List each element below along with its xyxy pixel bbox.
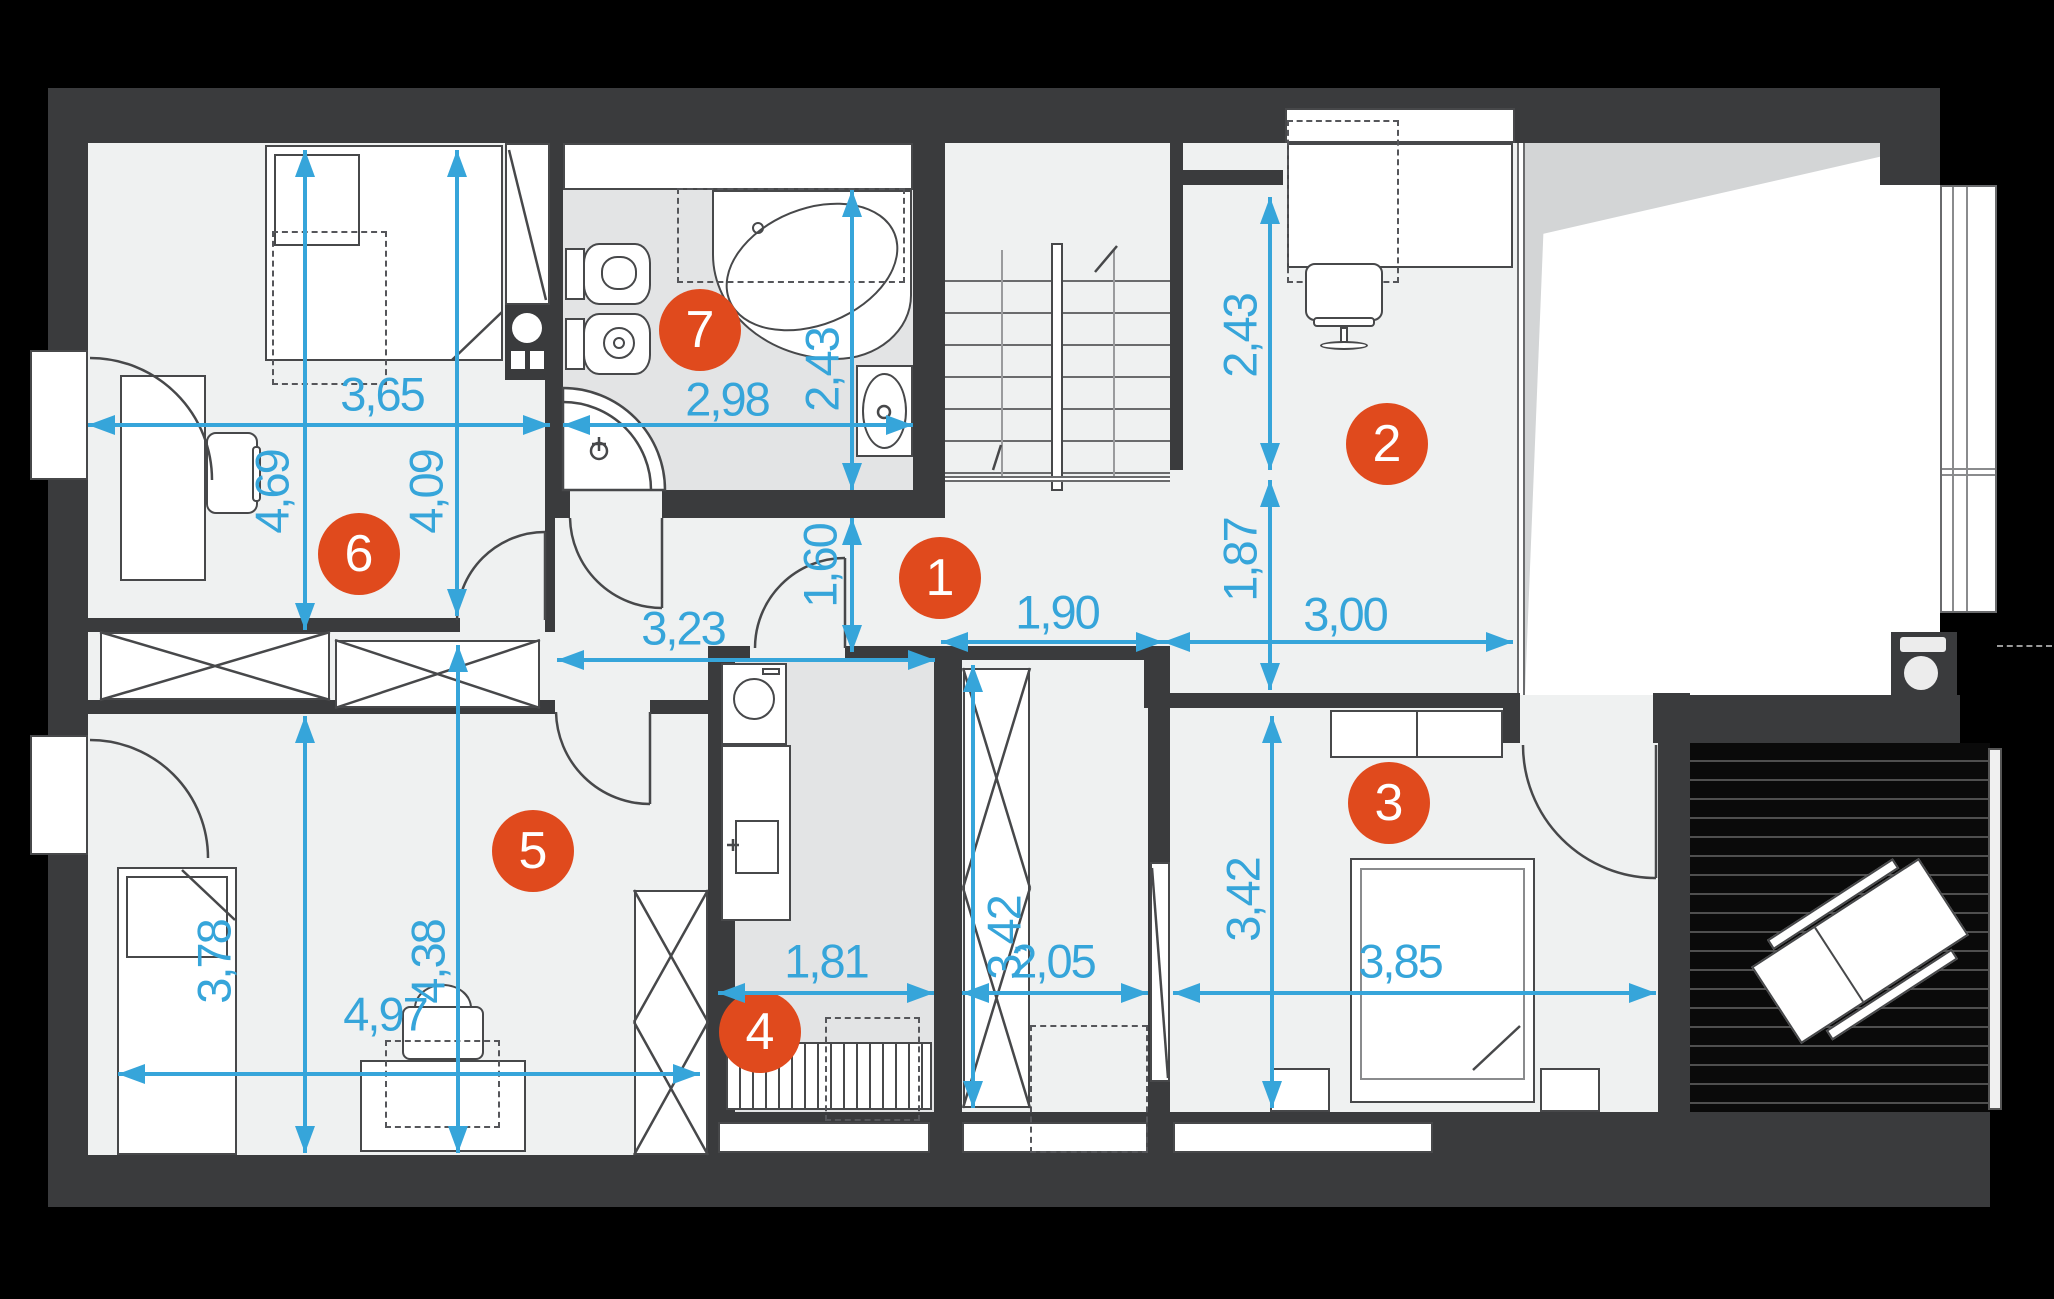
dimension-label: 4,69 <box>245 450 300 533</box>
wall-room3-right <box>1658 743 1690 1112</box>
room-badge-6: 6 <box>318 513 400 595</box>
dimension-label: 1,90 <box>1015 585 1098 640</box>
dimension-arrow <box>448 645 468 672</box>
gable-window <box>1940 185 1997 613</box>
dimension-arrow <box>1136 632 1163 652</box>
wall-terrace-parapet <box>1690 695 1960 743</box>
skylight-dashed-closet <box>1030 1025 1148 1153</box>
chair-room2-seat <box>1305 263 1383 321</box>
room-badge-1: 1 <box>899 537 981 619</box>
dimension-line-4,69 <box>303 150 307 630</box>
stair-divider <box>1113 250 1115 478</box>
dimension-arrow <box>842 190 862 217</box>
window-bottom-laundry <box>718 1122 930 1153</box>
gable-window-transom <box>1942 468 1995 476</box>
dimension-arrow <box>842 463 862 490</box>
dimension-arrow <box>1262 1081 1282 1108</box>
closet-door-leaf <box>1150 862 1170 1082</box>
dimension-line-4,09 <box>455 150 459 616</box>
dimension-line-1,90 <box>941 640 1163 644</box>
chimney-vent <box>511 351 525 369</box>
dimension-line-4,97 <box>118 1072 700 1076</box>
terrace-railing <box>1988 748 2002 1110</box>
roof-plane <box>1525 143 1940 695</box>
dimension-arrow <box>907 983 934 1003</box>
dimension-arrow <box>447 150 467 177</box>
window-left-room5 <box>30 735 88 855</box>
dimension-label: 3,42 <box>1216 858 1271 941</box>
chimney-room6 <box>505 305 550 380</box>
dimension-line-3,42 <box>1270 716 1274 1108</box>
window-left-room6 <box>30 350 88 480</box>
dimension-arrow <box>295 1126 315 1153</box>
dimension-line-1,81 <box>718 991 934 995</box>
dimension-arrow <box>842 625 862 652</box>
dimension-arrow <box>1486 632 1513 652</box>
dimension-label: 3,23 <box>641 601 724 656</box>
skylight-dashed-bath <box>677 188 905 283</box>
chimney-roof <box>1891 632 1957 695</box>
dimension-line-3,42 <box>971 665 975 1108</box>
staircase <box>945 143 1170 480</box>
wall-wardrobe-strip-bottom2 <box>650 700 708 714</box>
toilet-bowl <box>601 256 637 290</box>
window-top-bathroom <box>563 143 913 190</box>
dimension-arrow <box>962 983 989 1003</box>
wardrobe-row-a <box>100 632 330 700</box>
dimension-label: 3,65 <box>340 367 423 422</box>
gable-window-mullion <box>1966 187 1968 611</box>
wall-top-right <box>1880 88 1940 185</box>
dimension-arrow <box>886 415 913 435</box>
dimension-line-4,38 <box>456 645 460 1153</box>
dimension-line-2,43 <box>1268 197 1272 470</box>
dimension-line-1,87 <box>1268 480 1272 690</box>
bath-sink-basin <box>862 373 907 449</box>
dimension-line-3,78 <box>303 716 307 1153</box>
dimension-label: 2,43 <box>1213 294 1268 377</box>
dimension-arrow <box>1173 983 1200 1003</box>
dimension-label: 2,05 <box>1011 934 1094 989</box>
dimension-label: 3,00 <box>1303 587 1386 642</box>
dimension-arrow <box>963 1081 983 1108</box>
chimney-vent <box>530 351 544 369</box>
dimension-arrow <box>295 603 315 630</box>
wall-room3-north-post <box>1653 693 1690 743</box>
wall-bottom-left <box>48 1155 708 1207</box>
chimney-flue <box>1904 656 1938 690</box>
nightstand-room3 <box>1540 1068 1600 1112</box>
dimension-arrow <box>447 589 467 616</box>
washing-machine-drum <box>733 678 775 720</box>
dimension-label: 2,98 <box>685 372 768 427</box>
dimension-arrow <box>563 415 590 435</box>
window-bottom-room3 <box>1173 1122 1433 1153</box>
skylight-dashed-room4 <box>825 1017 920 1121</box>
skylight-dashed-room2 <box>1287 120 1399 283</box>
chair-room2-back <box>1313 317 1375 327</box>
dimension-arrow <box>1629 983 1656 1003</box>
room-badge-5: 5 <box>492 810 574 892</box>
wall-stairwell-stub <box>1183 170 1283 185</box>
dimension-label: 3,78 <box>187 920 242 1003</box>
wall-stairwell-right <box>1170 143 1183 470</box>
dimension-arrow <box>673 1064 700 1084</box>
wall-room3-north <box>1144 693 1520 708</box>
stair-landing-edge <box>945 476 1170 482</box>
dimension-label: 1,60 <box>793 524 848 607</box>
dimension-label: 4,97 <box>343 987 426 1042</box>
dimension-arrow <box>1260 480 1280 507</box>
boundary-dashed-line <box>1997 645 2052 647</box>
floor-plan-canvas: 1234567 3,652,982,431,604,694,092,431,87… <box>0 0 2054 1299</box>
wall-wardrobe-strip-top <box>88 618 460 632</box>
dimension-label: 4,09 <box>399 450 454 533</box>
stair-divider <box>1001 250 1003 478</box>
washing-machine-panel <box>762 668 780 675</box>
roof-edge-line <box>1517 143 1525 695</box>
dimension-label: 1,87 <box>1213 518 1268 601</box>
dimension-arrow <box>1121 983 1148 1003</box>
wardrobe-room5 <box>634 890 708 1155</box>
chair-room2-base <box>1320 341 1368 350</box>
dimension-line-2,43 <box>850 190 854 490</box>
dimension-line-3,23 <box>557 658 935 662</box>
dimension-arrow <box>557 650 584 670</box>
dimension-arrow <box>1260 197 1280 224</box>
dimension-arrow <box>908 650 935 670</box>
room-badge-3: 3 <box>1348 762 1430 844</box>
dimension-label: 3,85 <box>1358 934 1441 989</box>
wall-bath-right <box>913 143 945 518</box>
dimension-arrow <box>295 150 315 177</box>
dimension-arrow <box>88 415 115 435</box>
wall-room4-closet <box>934 660 962 1112</box>
wardrobe-room3-divider <box>1416 712 1418 756</box>
room-badge-4: 4 <box>719 991 801 1073</box>
dimension-label: 2,43 <box>795 328 850 411</box>
skylight-dashed-room5 <box>385 1040 500 1128</box>
wardrobe-room6 <box>505 143 550 305</box>
toilet-tank <box>565 248 585 300</box>
skylight-dashed-room6 <box>272 231 387 385</box>
chimney-cap <box>1900 637 1946 652</box>
dimension-arrow <box>963 665 983 692</box>
wall-room3-north-post <box>1503 693 1520 743</box>
desk-room6 <box>120 375 206 581</box>
dimension-label: 1,81 <box>784 934 867 989</box>
dimension-line-3,85 <box>1173 991 1656 995</box>
stair-rail <box>1051 243 1063 491</box>
wall-top <box>48 88 1880 143</box>
gable-window-mullion <box>1952 187 1954 611</box>
dimension-line-3,65 <box>88 423 550 427</box>
dimension-arrow <box>118 1064 145 1084</box>
dimension-arrow <box>448 1126 468 1153</box>
wardrobe-row-b <box>335 640 540 708</box>
dimension-arrow <box>718 983 745 1003</box>
room-badge-2: 2 <box>1346 403 1428 485</box>
bath-door-opening <box>570 490 662 518</box>
chimney-flue <box>512 313 542 343</box>
dimension-arrow <box>1260 663 1280 690</box>
dimension-arrow <box>1262 716 1282 743</box>
bidet-tank <box>565 318 585 370</box>
dimension-arrow <box>941 632 968 652</box>
room-badge-7: 7 <box>659 289 741 371</box>
bidet-drain <box>613 337 625 349</box>
wall-left <box>48 88 88 1207</box>
dimension-arrow <box>1163 632 1190 652</box>
dimension-arrow <box>1260 443 1280 470</box>
dimension-arrow <box>523 415 550 435</box>
dimension-arrow <box>295 716 315 743</box>
laundry-sink <box>735 820 779 874</box>
